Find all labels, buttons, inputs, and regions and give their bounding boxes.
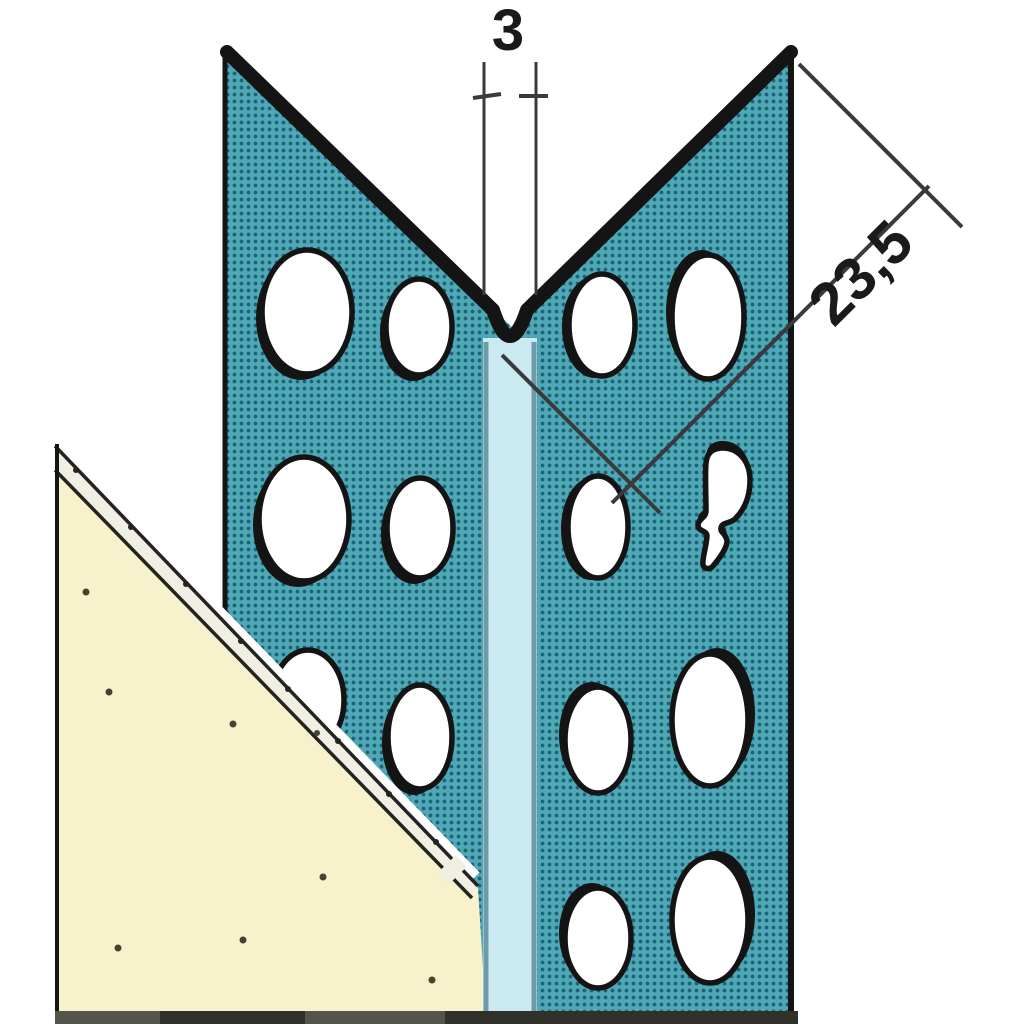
dim-label-bead-width: 3 [492,0,524,63]
perforation-hole [561,476,628,580]
profile-cross-section-drawing: 3 23,5 [0,0,1024,1024]
bead-nose-strip [483,338,537,1016]
extension-line-from-peak [799,64,962,227]
dim-label-flange-width: 23,5 [796,208,926,338]
bead-nose [483,338,537,1016]
perforation-hole [562,274,635,378]
dimension-tick [473,94,501,98]
dimension-bead-width: 3 [473,0,548,295]
base-line [55,1011,798,1024]
corner-profile-diagram: 3 23,5 [0,0,1024,1024]
